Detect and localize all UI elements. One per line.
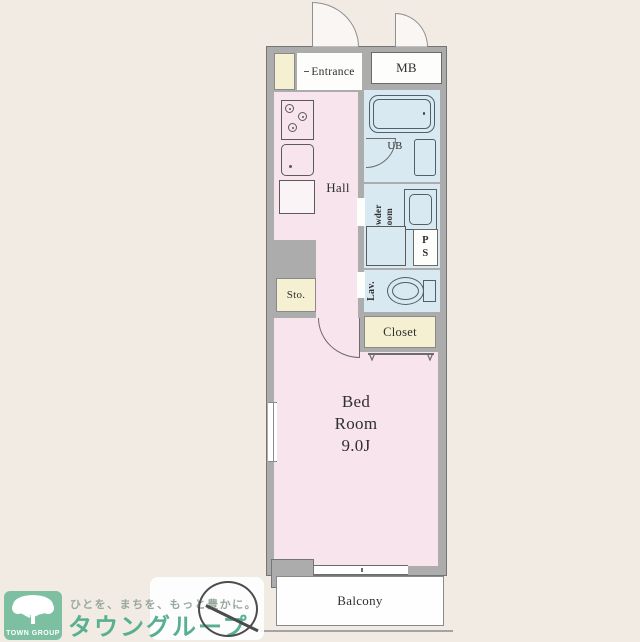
bathtub — [369, 95, 435, 133]
pipe-space: P S — [413, 229, 438, 266]
closet: Closet — [364, 316, 436, 348]
town-group-logo: TOWN GROUP — [4, 591, 62, 640]
hanger-hook-left-icon — [368, 353, 376, 362]
bedroom-window-left — [268, 402, 277, 462]
bedroom-label-line2: Room — [335, 413, 378, 435]
balcony-label: Balcony — [337, 593, 382, 609]
bedroom-label: Bed Room 9.0J — [296, 388, 416, 460]
pipe-space-label-s: S — [422, 248, 428, 260]
kitchen-sink — [281, 144, 314, 176]
storage-label: Sto. — [287, 289, 306, 301]
powder-room-door-opening — [357, 198, 365, 226]
entrance-floor: Entrance — [297, 53, 362, 90]
hall-label: Hall — [316, 180, 360, 196]
entrance-door-line — [304, 71, 309, 73]
bedroom-label-line1: Bed — [342, 391, 370, 413]
washing-machine-space — [366, 226, 406, 266]
mb-label: MB — [396, 60, 417, 76]
shoe-cabinet — [274, 53, 295, 90]
lavatory-door-opening — [357, 272, 365, 298]
bathroom-label: UB — [382, 139, 408, 153]
bedroom-size-label: 9.0J — [341, 435, 370, 457]
washbasin — [404, 189, 437, 230]
pipe-space-label-p: P — [422, 235, 429, 247]
entrance-label: Entrance — [311, 66, 354, 78]
magnifier-icon — [198, 581, 258, 637]
meter-box: MB — [371, 52, 442, 84]
entrance-door-arc — [312, 2, 359, 47]
town-group-label: TOWN GROUP — [6, 630, 60, 637]
refrigerator-space — [279, 180, 315, 214]
stove-burner-icon — [285, 104, 294, 113]
storage-room: Sto. — [276, 278, 316, 312]
toilet-bowl-icon — [387, 277, 424, 305]
kitchen-stove — [281, 100, 314, 140]
stove-burner-icon — [298, 112, 307, 121]
balcony: Balcony — [276, 576, 444, 626]
bath-vanity — [414, 139, 436, 176]
closet-label: Closet — [383, 325, 417, 340]
toilet-tank-icon — [423, 280, 436, 302]
stove-burner-icon — [288, 123, 297, 132]
balcony-sliding-window — [314, 565, 408, 575]
outer-boundary-line — [260, 630, 453, 632]
closet-hanger-pipe — [368, 353, 434, 355]
mb-door-arc — [395, 13, 428, 47]
hanger-hook-right-icon — [426, 353, 434, 362]
hall-corridor — [316, 240, 358, 318]
tree-icon — [10, 594, 56, 626]
